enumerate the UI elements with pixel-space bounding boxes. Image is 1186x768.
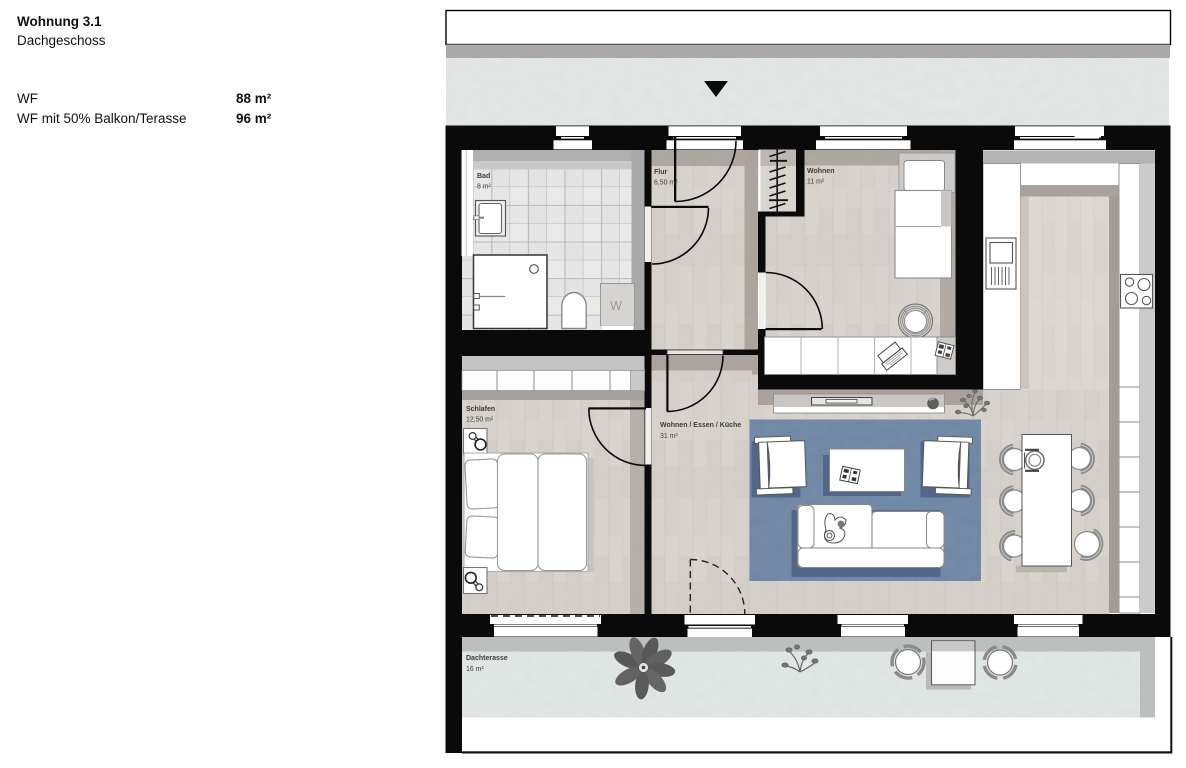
svg-text:Bad: Bad [477,173,490,180]
svg-text:Wohnen / Essen / Küche: Wohnen / Essen / Küche [660,422,741,429]
svg-text:31 m²: 31 m² [660,433,678,440]
svg-text:16 m²: 16 m² [466,666,484,673]
svg-text:WF mit 50% Balkon/Terasse: WF mit 50% Balkon/Terasse [17,111,187,126]
svg-text:96 m²: 96 m² [236,111,272,126]
svg-text:8 m²: 8 m² [477,184,491,191]
svg-text:Schlafen: Schlafen [466,406,495,413]
svg-text:Flur: Flur [654,169,667,176]
svg-text:12,50 m²: 12,50 m² [466,417,494,424]
svg-text:W: W [610,299,622,313]
svg-text:Wohnen: Wohnen [807,168,834,175]
svg-text:Dachgeschoss: Dachgeschoss [17,33,106,48]
svg-text:Wohnung 3.1: Wohnung 3.1 [17,14,102,29]
svg-text:6,50 m²: 6,50 m² [654,180,678,187]
svg-text:Dachterasse: Dachterasse [466,655,508,662]
svg-text:11 m²: 11 m² [807,179,825,186]
svg-text:WF: WF [17,91,38,106]
svg-text:88 m²: 88 m² [236,91,272,106]
